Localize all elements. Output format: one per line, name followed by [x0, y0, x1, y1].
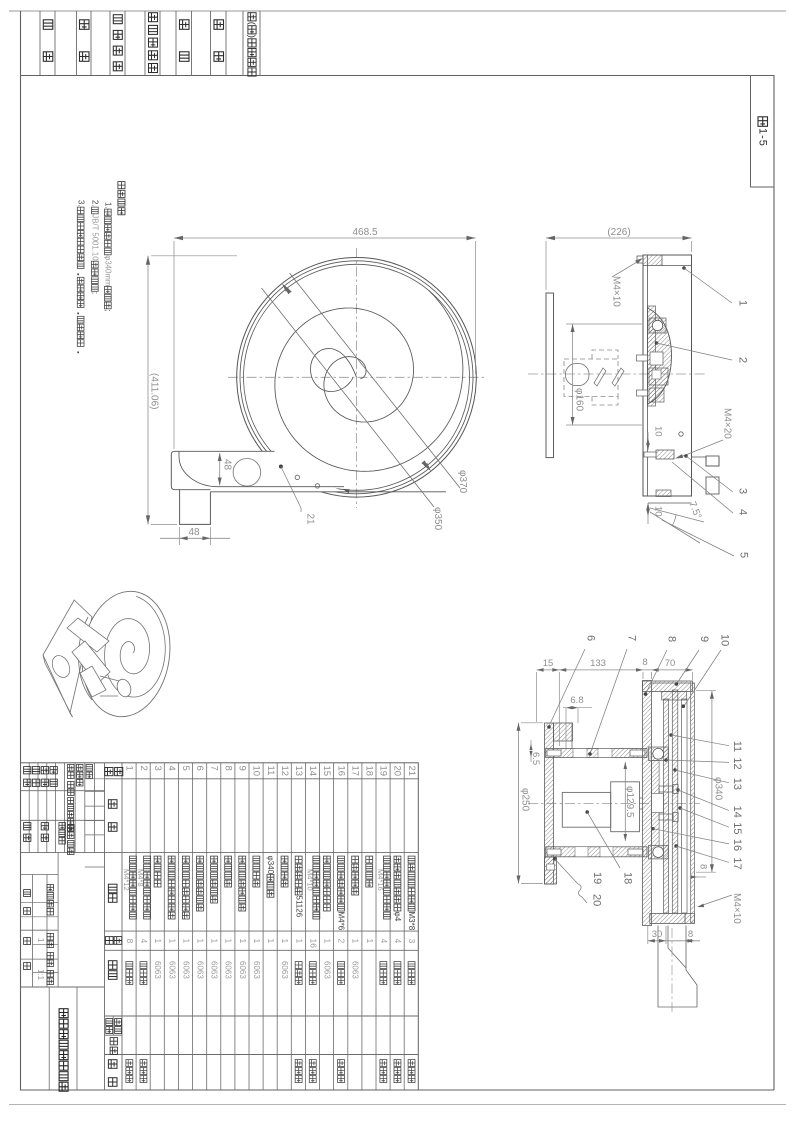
svg-text:15: 15: [543, 658, 554, 669]
svg-text:14: 14: [307, 766, 318, 777]
svg-text:15: 15: [321, 766, 332, 777]
svg-text:6063: 6063: [210, 961, 219, 979]
svg-text:6063: 6063: [167, 961, 176, 979]
svg-text:6: 6: [194, 766, 205, 771]
svg-text:15: 15: [731, 822, 743, 834]
svg-text:19: 19: [591, 872, 603, 884]
svg-text:1: 1: [365, 939, 375, 944]
svg-text:4: 4: [379, 939, 389, 944]
svg-text:10: 10: [251, 766, 262, 777]
svg-text:1:1: 1:1: [36, 969, 45, 981]
svg-text:8: 8: [125, 939, 135, 944]
svg-text:;: ;: [104, 309, 113, 311]
svg-text:M4*16: M4*16: [376, 869, 385, 891]
svg-text:7: 7: [208, 766, 219, 771]
svg-text:48: 48: [222, 459, 233, 471]
svg-text:1.: 1.: [104, 202, 113, 209]
svg-text:1: 1: [294, 939, 304, 944]
svg-text:7: 7: [626, 635, 638, 641]
svg-text:M4*6: M4*6: [337, 912, 346, 931]
svg-text:1: 1: [266, 939, 276, 944]
svg-text:17: 17: [731, 857, 743, 869]
svg-text:8: 8: [642, 657, 647, 668]
svg-text:16: 16: [335, 766, 346, 777]
svg-text:8: 8: [688, 929, 693, 940]
svg-text:2: 2: [138, 766, 149, 771]
svg-text:M3*8: M3*8: [407, 912, 416, 931]
svg-text:M4*8: M4*8: [136, 869, 145, 887]
svg-text:1: 1: [167, 939, 177, 944]
svg-text:16: 16: [731, 839, 743, 851]
svg-text:6063: 6063: [280, 961, 289, 979]
svg-text:48: 48: [188, 527, 200, 538]
svg-text:9: 9: [698, 636, 710, 642]
svg-text:1: 1: [153, 939, 163, 944]
svg-text:21: 21: [406, 766, 417, 777]
svg-text:11: 11: [731, 741, 743, 752]
svg-text:1: 1: [323, 939, 333, 944]
svg-text:2: 2: [737, 357, 749, 363]
svg-text:6063: 6063: [181, 961, 190, 979]
svg-text:6063: 6063: [323, 961, 332, 979]
svg-text:2.: 2.: [91, 200, 100, 207]
svg-text:2: 2: [337, 939, 347, 944]
svg-text:): ): [246, 35, 257, 38]
svg-text:12: 12: [279, 766, 290, 777]
svg-text:17: 17: [349, 766, 360, 777]
svg-text:8: 8: [666, 636, 678, 642]
svg-text:1: 1: [238, 939, 248, 944]
svg-text:1: 1: [196, 939, 206, 944]
svg-text:M4×10: M4×10: [731, 893, 742, 924]
svg-text:1: 1: [36, 938, 45, 943]
svg-text:14: 14: [731, 806, 743, 818]
svg-text:30: 30: [652, 929, 663, 940]
svg-text:12: 12: [731, 757, 743, 769]
svg-text:(226): (226): [607, 227, 630, 238]
svg-text:6063: 6063: [196, 961, 205, 979]
svg-text:JB/T 5001.10: JB/T 5001.10: [91, 214, 100, 261]
svg-text:51126: 51126: [294, 896, 303, 918]
svg-text:6063: 6063: [351, 961, 360, 979]
svg-text:6063: 6063: [224, 961, 233, 979]
svg-text:10: 10: [653, 426, 664, 437]
svg-text:19: 19: [378, 766, 389, 777]
svg-text:4: 4: [166, 766, 177, 771]
svg-text:6: 6: [585, 635, 597, 641]
svg-text:1: 1: [280, 939, 290, 944]
svg-text:φ340mm: φ340mm: [104, 255, 113, 286]
svg-text:φ160: φ160: [574, 388, 585, 412]
svg-text:3: 3: [152, 766, 163, 771]
svg-text:6063: 6063: [252, 961, 261, 979]
svg-text:φ129.5: φ129.5: [624, 786, 635, 818]
svg-text:φ370: φ370: [457, 470, 468, 494]
svg-text:1-5: 1-5: [756, 128, 768, 147]
svg-text:φ4: φ4: [393, 912, 402, 922]
svg-text:8: 8: [222, 766, 233, 771]
svg-text:21: 21: [305, 514, 316, 526]
svg-text:3: 3: [407, 939, 417, 944]
svg-text:6.5: 6.5: [530, 752, 541, 765]
svg-text:5: 5: [738, 552, 750, 558]
svg-text:10: 10: [719, 634, 731, 646]
svg-text:φ340: φ340: [266, 856, 275, 875]
svg-text:13: 13: [731, 778, 743, 790]
svg-text:M4×20: M4×20: [722, 408, 733, 439]
svg-text:M4*10: M4*10: [306, 869, 315, 891]
svg-text:3.: 3.: [76, 200, 85, 207]
svg-text:70: 70: [665, 658, 676, 669]
svg-text:11: 11: [265, 766, 276, 776]
svg-text:(411.06): (411.06): [149, 373, 160, 410]
svg-text:φ350: φ350: [432, 507, 443, 531]
svg-text:1: 1: [181, 939, 191, 944]
svg-text:133: 133: [590, 658, 606, 669]
svg-text:20: 20: [591, 894, 603, 906]
svg-text:4: 4: [393, 939, 403, 944]
svg-text:13: 13: [293, 766, 304, 777]
svg-text:1: 1: [210, 939, 220, 944]
svg-text:M4*12: M4*12: [122, 869, 131, 891]
svg-text:1: 1: [737, 300, 749, 306]
svg-text:8: 8: [698, 864, 709, 869]
svg-text:16: 16: [308, 939, 318, 949]
svg-text:3: 3: [737, 488, 749, 494]
svg-text:5: 5: [180, 766, 191, 771]
svg-text:9: 9: [237, 766, 248, 771]
svg-text:468.5: 468.5: [352, 227, 377, 238]
svg-text:4: 4: [737, 509, 749, 515]
svg-text:φ250: φ250: [520, 788, 531, 812]
svg-text:6063: 6063: [238, 961, 247, 979]
svg-text:18: 18: [622, 872, 634, 884]
svg-text:18: 18: [364, 766, 375, 777]
svg-text:1: 1: [224, 939, 234, 944]
svg-text:1: 1: [351, 939, 361, 944]
svg-text:6.8: 6.8: [570, 695, 583, 706]
svg-text:20: 20: [392, 766, 403, 777]
svg-text:M4×10: M4×10: [611, 276, 622, 307]
svg-text:1: 1: [252, 939, 262, 944]
svg-text:1: 1: [124, 766, 135, 771]
svg-text:4: 4: [139, 939, 149, 944]
svg-text:6063: 6063: [153, 961, 162, 979]
svg-text:;: ;: [91, 292, 100, 294]
